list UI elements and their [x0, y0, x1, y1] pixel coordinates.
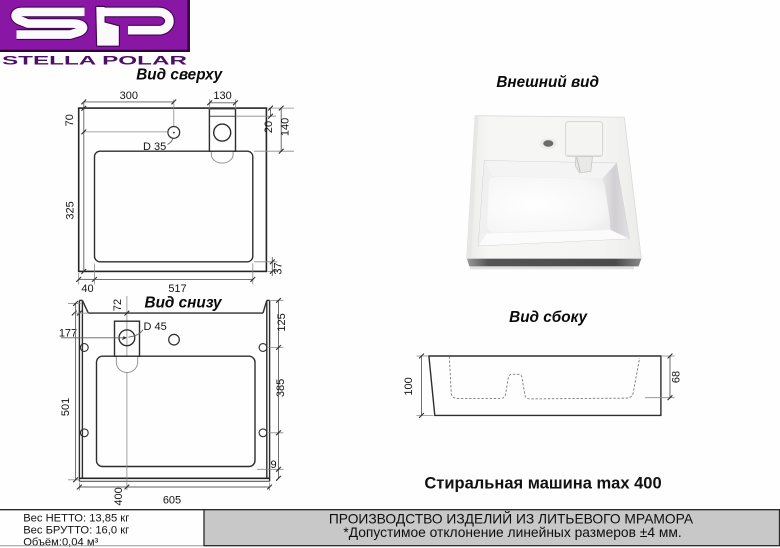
- svg-text:Вид сверху: Вид сверху: [136, 66, 223, 83]
- svg-text:140: 140: [279, 118, 291, 136]
- svg-text:Стиральная машина max 400: Стиральная машина max 400: [424, 475, 661, 493]
- svg-text:Вес БРУТТО: 16,0 кг: Вес БРУТТО: 16,0 кг: [23, 525, 129, 537]
- svg-text:*Допустимое отклонение линейны: *Допустимое отклонение линейных размеров…: [343, 525, 681, 540]
- svg-text:385: 385: [275, 379, 287, 397]
- svg-text:130: 130: [213, 90, 231, 102]
- svg-text:20: 20: [263, 121, 275, 133]
- svg-text:501: 501: [60, 398, 72, 416]
- svg-text:325: 325: [64, 201, 76, 219]
- svg-text:40: 40: [81, 283, 93, 295]
- svg-text:68: 68: [671, 371, 683, 383]
- svg-text:400: 400: [113, 487, 125, 505]
- svg-text:72: 72: [112, 299, 124, 311]
- svg-text:Вес НЕТТО: 13,85 кг: Вес НЕТТО: 13,85 кг: [23, 512, 129, 524]
- svg-text:70: 70: [64, 114, 76, 126]
- svg-text:D 35: D 35: [143, 141, 166, 153]
- svg-text:9: 9: [270, 459, 276, 471]
- svg-text:300: 300: [120, 90, 138, 102]
- svg-text:125: 125: [276, 313, 288, 331]
- svg-text:517: 517: [168, 283, 186, 295]
- svg-text:100: 100: [403, 377, 415, 395]
- svg-text:177: 177: [59, 327, 77, 339]
- svg-text:D 45: D 45: [144, 321, 167, 333]
- svg-text:Вид снизу: Вид снизу: [145, 294, 223, 311]
- svg-text:37: 37: [273, 262, 285, 274]
- svg-text:Внешний вид: Внешний вид: [496, 74, 599, 91]
- svg-text:Вид сбоку: Вид сбоку: [509, 309, 588, 326]
- svg-text:605: 605: [163, 495, 181, 507]
